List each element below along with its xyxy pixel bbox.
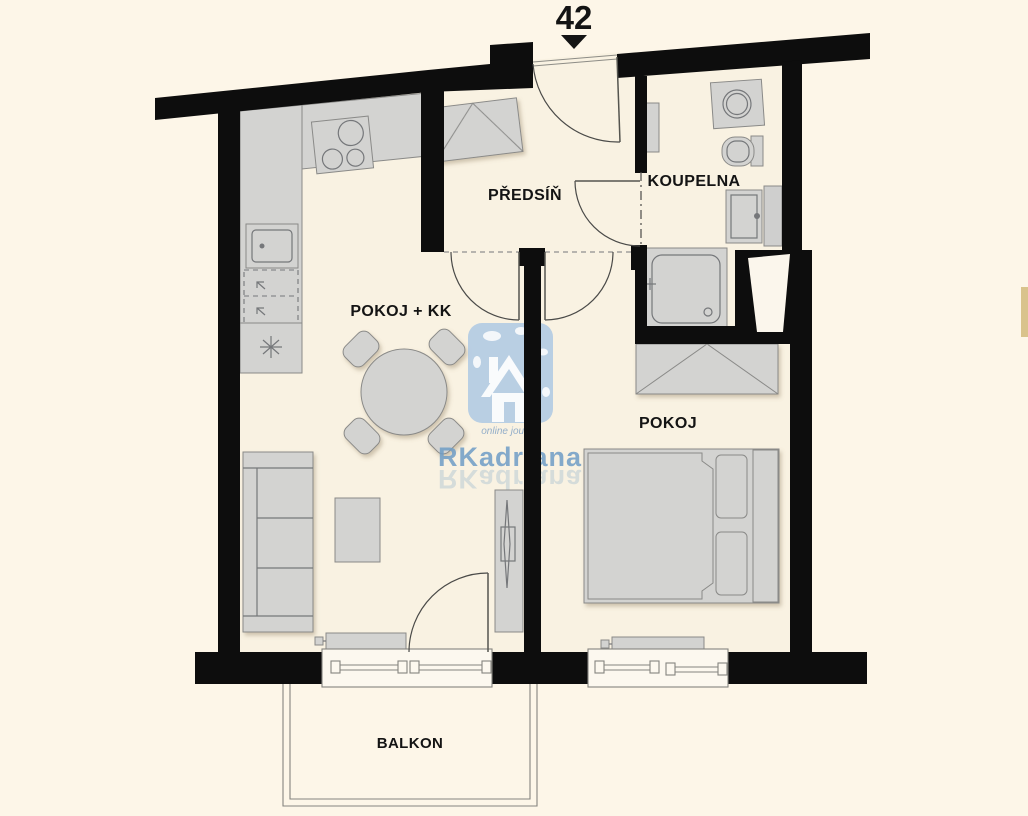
dining-table [361, 349, 447, 435]
coffee-table [335, 498, 380, 562]
mattress [588, 453, 713, 599]
room-label-bedroom: POKOJ [639, 415, 697, 432]
floorplan-canvas: online journal RKadriana RKadriana [0, 0, 1028, 816]
washing-machine [710, 79, 764, 128]
toilet [722, 136, 763, 166]
double-bed [584, 449, 779, 603]
room-label-bathroom: KOUPELNA [648, 173, 741, 190]
bathroom-sink [726, 190, 762, 243]
wall-bath-partition-lower [635, 268, 647, 330]
wall-bath-partition-upper [635, 76, 647, 173]
wall-hall-left [421, 90, 444, 252]
wall-right [790, 340, 812, 684]
room-label-balcony: BALKON [377, 735, 444, 752]
headboard [753, 450, 778, 602]
wall-left [218, 111, 240, 654]
bedroom-wardrobe [636, 344, 778, 394]
radiator-living [315, 633, 406, 650]
edge-accent [1021, 287, 1028, 337]
unit-number: 42 [556, 0, 593, 36]
cooktop [311, 116, 373, 174]
pillow [716, 455, 747, 518]
pillow [716, 532, 747, 595]
wall-hall-stub [519, 248, 545, 266]
floorplan-page: online journal RKadriana RKadriana [0, 0, 1028, 816]
wall-bath-partition-stub [631, 245, 647, 270]
wall-central [524, 266, 541, 654]
watermark-brand-reflection: RKadriana [438, 464, 582, 494]
wall-bathroom-right [782, 60, 802, 258]
room-label-hall: PŘEDSÍŇ [488, 185, 562, 204]
sofa [243, 452, 313, 632]
kitchen-sink [246, 224, 298, 268]
duct-panel [764, 186, 782, 246]
wall-bottom [195, 652, 867, 684]
room-label-living: POKOJ + KK [350, 303, 451, 320]
tv-stand [495, 490, 523, 632]
shower [645, 248, 727, 330]
